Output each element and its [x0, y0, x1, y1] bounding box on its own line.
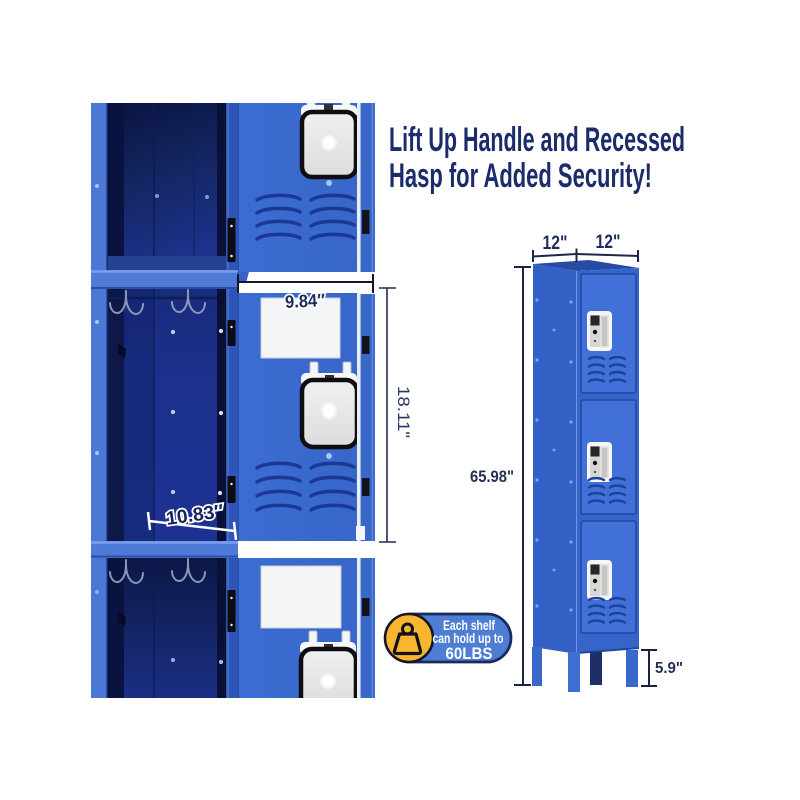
svg-text:60LBS: 60LBS	[446, 644, 493, 663]
svg-text:Hasp for Added Security!: Hasp for Added Security!	[389, 157, 652, 195]
svg-text:9.84″: 9.84″	[285, 290, 326, 312]
svg-text:Lift Up Handle and Recessed: Lift Up Handle and Recessed	[389, 121, 685, 159]
svg-text:12": 12"	[543, 233, 568, 254]
svg-text:12": 12"	[596, 232, 621, 253]
svg-text:5.9": 5.9"	[655, 660, 683, 677]
svg-text:18.11": 18.11"	[394, 386, 413, 438]
svg-text:65.98": 65.98"	[470, 468, 514, 486]
